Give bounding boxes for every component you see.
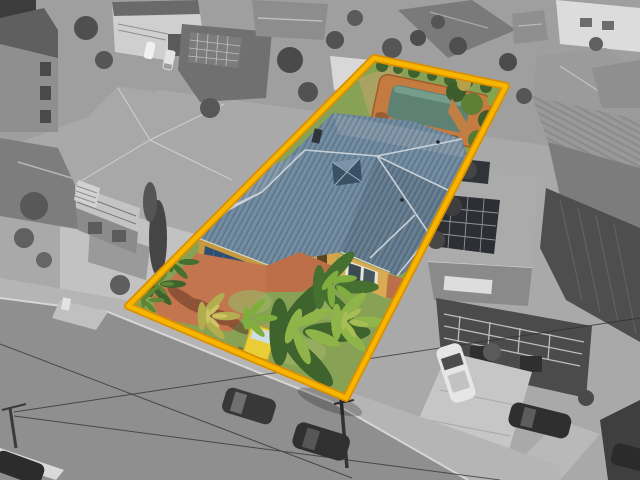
aerial-photo	[0, 0, 640, 480]
bird	[436, 140, 440, 144]
neighbour-house-top-left	[0, 0, 58, 132]
neighbour-house-gable	[252, 0, 328, 40]
bird	[400, 198, 404, 202]
photo-canvas	[0, 0, 640, 480]
skylight	[332, 158, 362, 186]
